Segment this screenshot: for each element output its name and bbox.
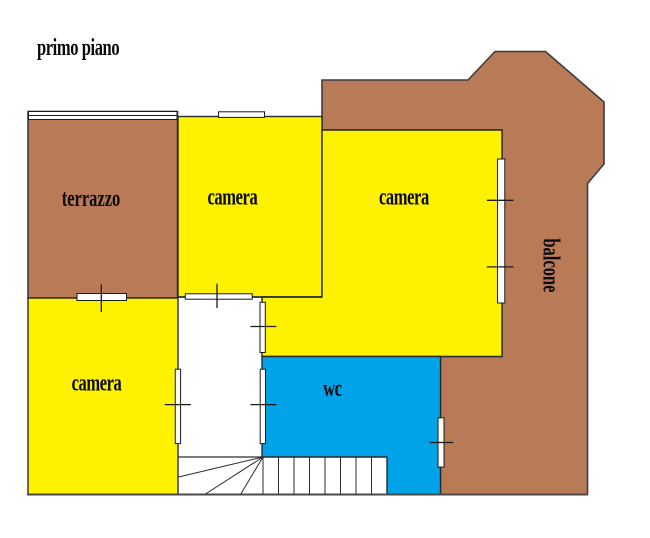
svg-text:camera: camera (208, 182, 259, 210)
svg-text:camera: camera (379, 182, 430, 210)
svg-text:balcone: balcone (538, 238, 566, 292)
svg-text:primo piano: primo piano (37, 32, 119, 60)
svg-text:camera: camera (72, 368, 123, 396)
svg-text:wc: wc (323, 374, 342, 402)
svg-text:terrazzo: terrazzo (62, 183, 121, 211)
